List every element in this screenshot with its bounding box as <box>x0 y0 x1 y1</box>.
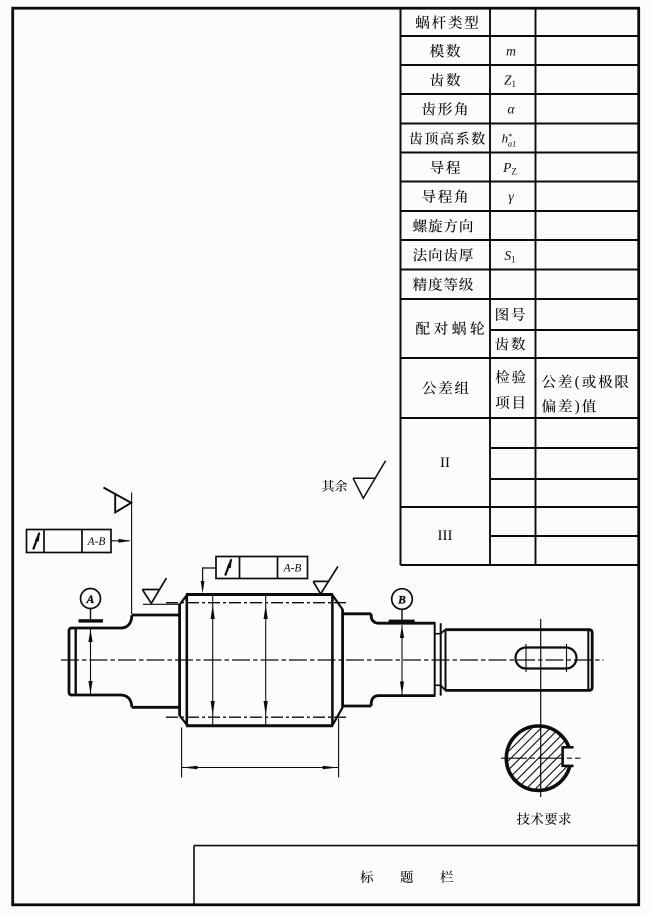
svg-text:III: III <box>438 528 453 544</box>
svg-text:γ: γ <box>508 189 514 204</box>
svg-text:m: m <box>506 44 516 59</box>
svg-text:B: B <box>397 595 406 607</box>
svg-text:): ) <box>575 398 580 415</box>
svg-text:A: A <box>86 594 95 606</box>
svg-text:(: ( <box>575 374 580 391</box>
svg-text:II: II <box>440 455 450 471</box>
svg-text:A-B: A-B <box>283 563 302 575</box>
svg-text:α: α <box>507 102 515 117</box>
svg-text:A-B: A-B <box>87 536 106 548</box>
